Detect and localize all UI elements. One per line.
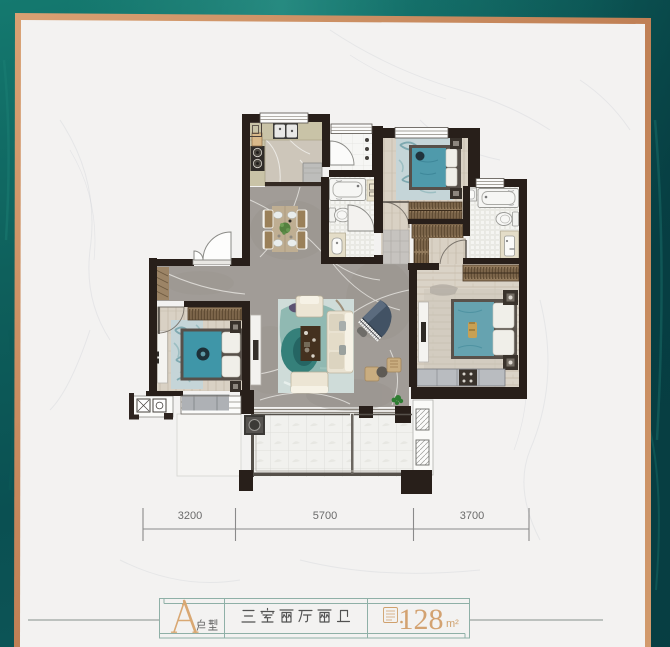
svg-text:3200: 3200 <box>178 510 202 522</box>
svg-text:5700: 5700 <box>313 510 337 522</box>
svg-text:m²: m² <box>446 618 459 630</box>
svg-text:3700: 3700 <box>460 510 484 522</box>
svg-text:128: 128 <box>399 603 444 636</box>
